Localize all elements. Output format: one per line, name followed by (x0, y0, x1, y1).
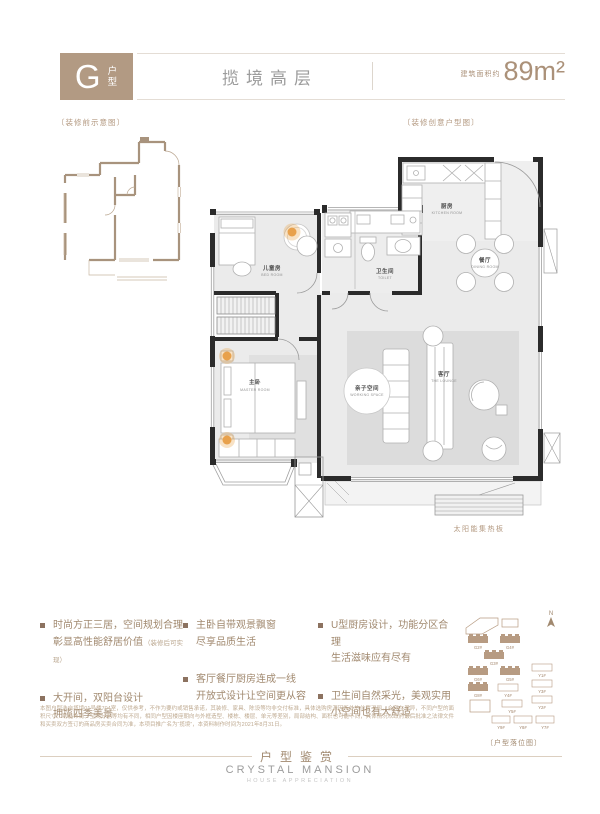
building-label: Y4# (504, 693, 512, 698)
north-label: N (549, 611, 553, 617)
footer-title-cn: 户型鉴赏 (0, 748, 600, 765)
working-label-en: WORKING SPACE (350, 393, 384, 397)
building-label: G3# (490, 661, 499, 666)
kids-room-label-en: BED ROOM (261, 273, 282, 277)
bullet-square-icon (183, 623, 188, 628)
bullet-square-icon (318, 694, 323, 699)
wardrobe-closets (217, 297, 275, 334)
before-decoration-floorplan (55, 135, 195, 285)
lounge-label-en: THE LOUNGE (431, 379, 457, 383)
working-label-cn: 亲子空间 (355, 384, 379, 392)
creative-floorplan: 儿童房 BED ROOM 卫生间 TOILET 厨房 KITCHEN ROOM … (197, 133, 567, 545)
kitchen-label-en: KITCHEN ROOM (432, 211, 463, 215)
header-bottom-rule (137, 99, 565, 100)
bullet-square-icon (40, 696, 45, 701)
disclaimer-text: 本图户型选自揽境01号楼704室，仅供参考，不作为要约或销售承诺，其装修、家具、… (40, 705, 454, 729)
building-label: Y7# (541, 725, 549, 730)
building-label: G8# (474, 693, 483, 698)
small-plan-windows (64, 174, 181, 280)
toilet-label-en: TOILET (378, 276, 393, 280)
feature-item: 主卧自带观景飘窗 尽享品质生活 (183, 618, 318, 651)
kids-room-label-cn: 儿童房 (262, 264, 281, 272)
building-label: G6# (474, 677, 483, 682)
bullet-square-icon (318, 623, 323, 628)
building-label: Y8# (519, 725, 527, 730)
feature-item: 客厅餐厅厨房连成一线 开放式设计让空间更从容 (183, 672, 318, 705)
badge-letter: G (75, 60, 101, 93)
dining-label-en: DINING ROOM (471, 265, 498, 269)
small-plan-walls (65, 142, 179, 260)
kitchen-label-cn: 厨房 (441, 202, 453, 210)
built-area: 建筑面积约 89m² (460, 58, 565, 85)
sitemap-caption: 〔户型落位图〕 (458, 738, 570, 748)
building-label: Y9# (497, 725, 505, 730)
feature-item: 时尚方正三居，空间规划合理 彰显高性能舒居价值（装修后可实现） (40, 618, 183, 670)
building-label: G2# (474, 645, 483, 650)
header-top-rule (137, 53, 565, 54)
master-label-cn: 主卧 (249, 378, 261, 386)
area-prefix: 建筑面积约 (460, 69, 500, 85)
unit-type-badge: G 户 型 (60, 53, 133, 100)
lounge-label-cn: 客厅 (437, 370, 450, 378)
building-label: G5# (506, 677, 515, 682)
building-label: Y3# (538, 689, 546, 694)
brochure-page: G 户 型 揽境高层 建筑面积约 89m² 〔装修前示意图〕 〔装修创意户型图〕 (0, 0, 600, 814)
small-plan-label: 〔装修前示意图〕 (57, 117, 125, 128)
master-label-en: MASTER ROOM (240, 388, 270, 392)
feature-item: U型厨房设计，功能分区合理 生活滋味应有尽有 (318, 618, 458, 668)
building-location-map: G2# G4# G3# G6# G5# G8# Y1# Y3# Y4# Y2# … (458, 612, 570, 738)
dining-label-cn: 餐厅 (478, 256, 491, 264)
compass-needle (547, 617, 555, 627)
building-label: G4# (506, 645, 515, 650)
toilet-label-cn: 卫生间 (376, 267, 394, 275)
main-plan-label: 〔装修创意户型图〕 (403, 117, 480, 128)
footer-title-en: CRYSTAL MANSION (0, 764, 600, 776)
header-divider (372, 62, 373, 90)
area-value: 89m² (503, 58, 565, 85)
footer-subtitle: HOUSE APPRECIATION (0, 778, 600, 784)
page-title: 揽境高层 (160, 64, 380, 89)
small-plan-flue (140, 137, 149, 143)
building-label: Y2# (538, 705, 546, 710)
bullet-square-icon (183, 677, 188, 682)
north-compass-icon: N (544, 608, 558, 630)
building-label: Y5# (508, 709, 516, 714)
bullet-square-icon (40, 623, 45, 628)
solar-panel-label: 太阳能集热板 (454, 524, 505, 533)
badge-type-label: 户 型 (108, 66, 119, 88)
building-label: Y1# (538, 673, 546, 678)
